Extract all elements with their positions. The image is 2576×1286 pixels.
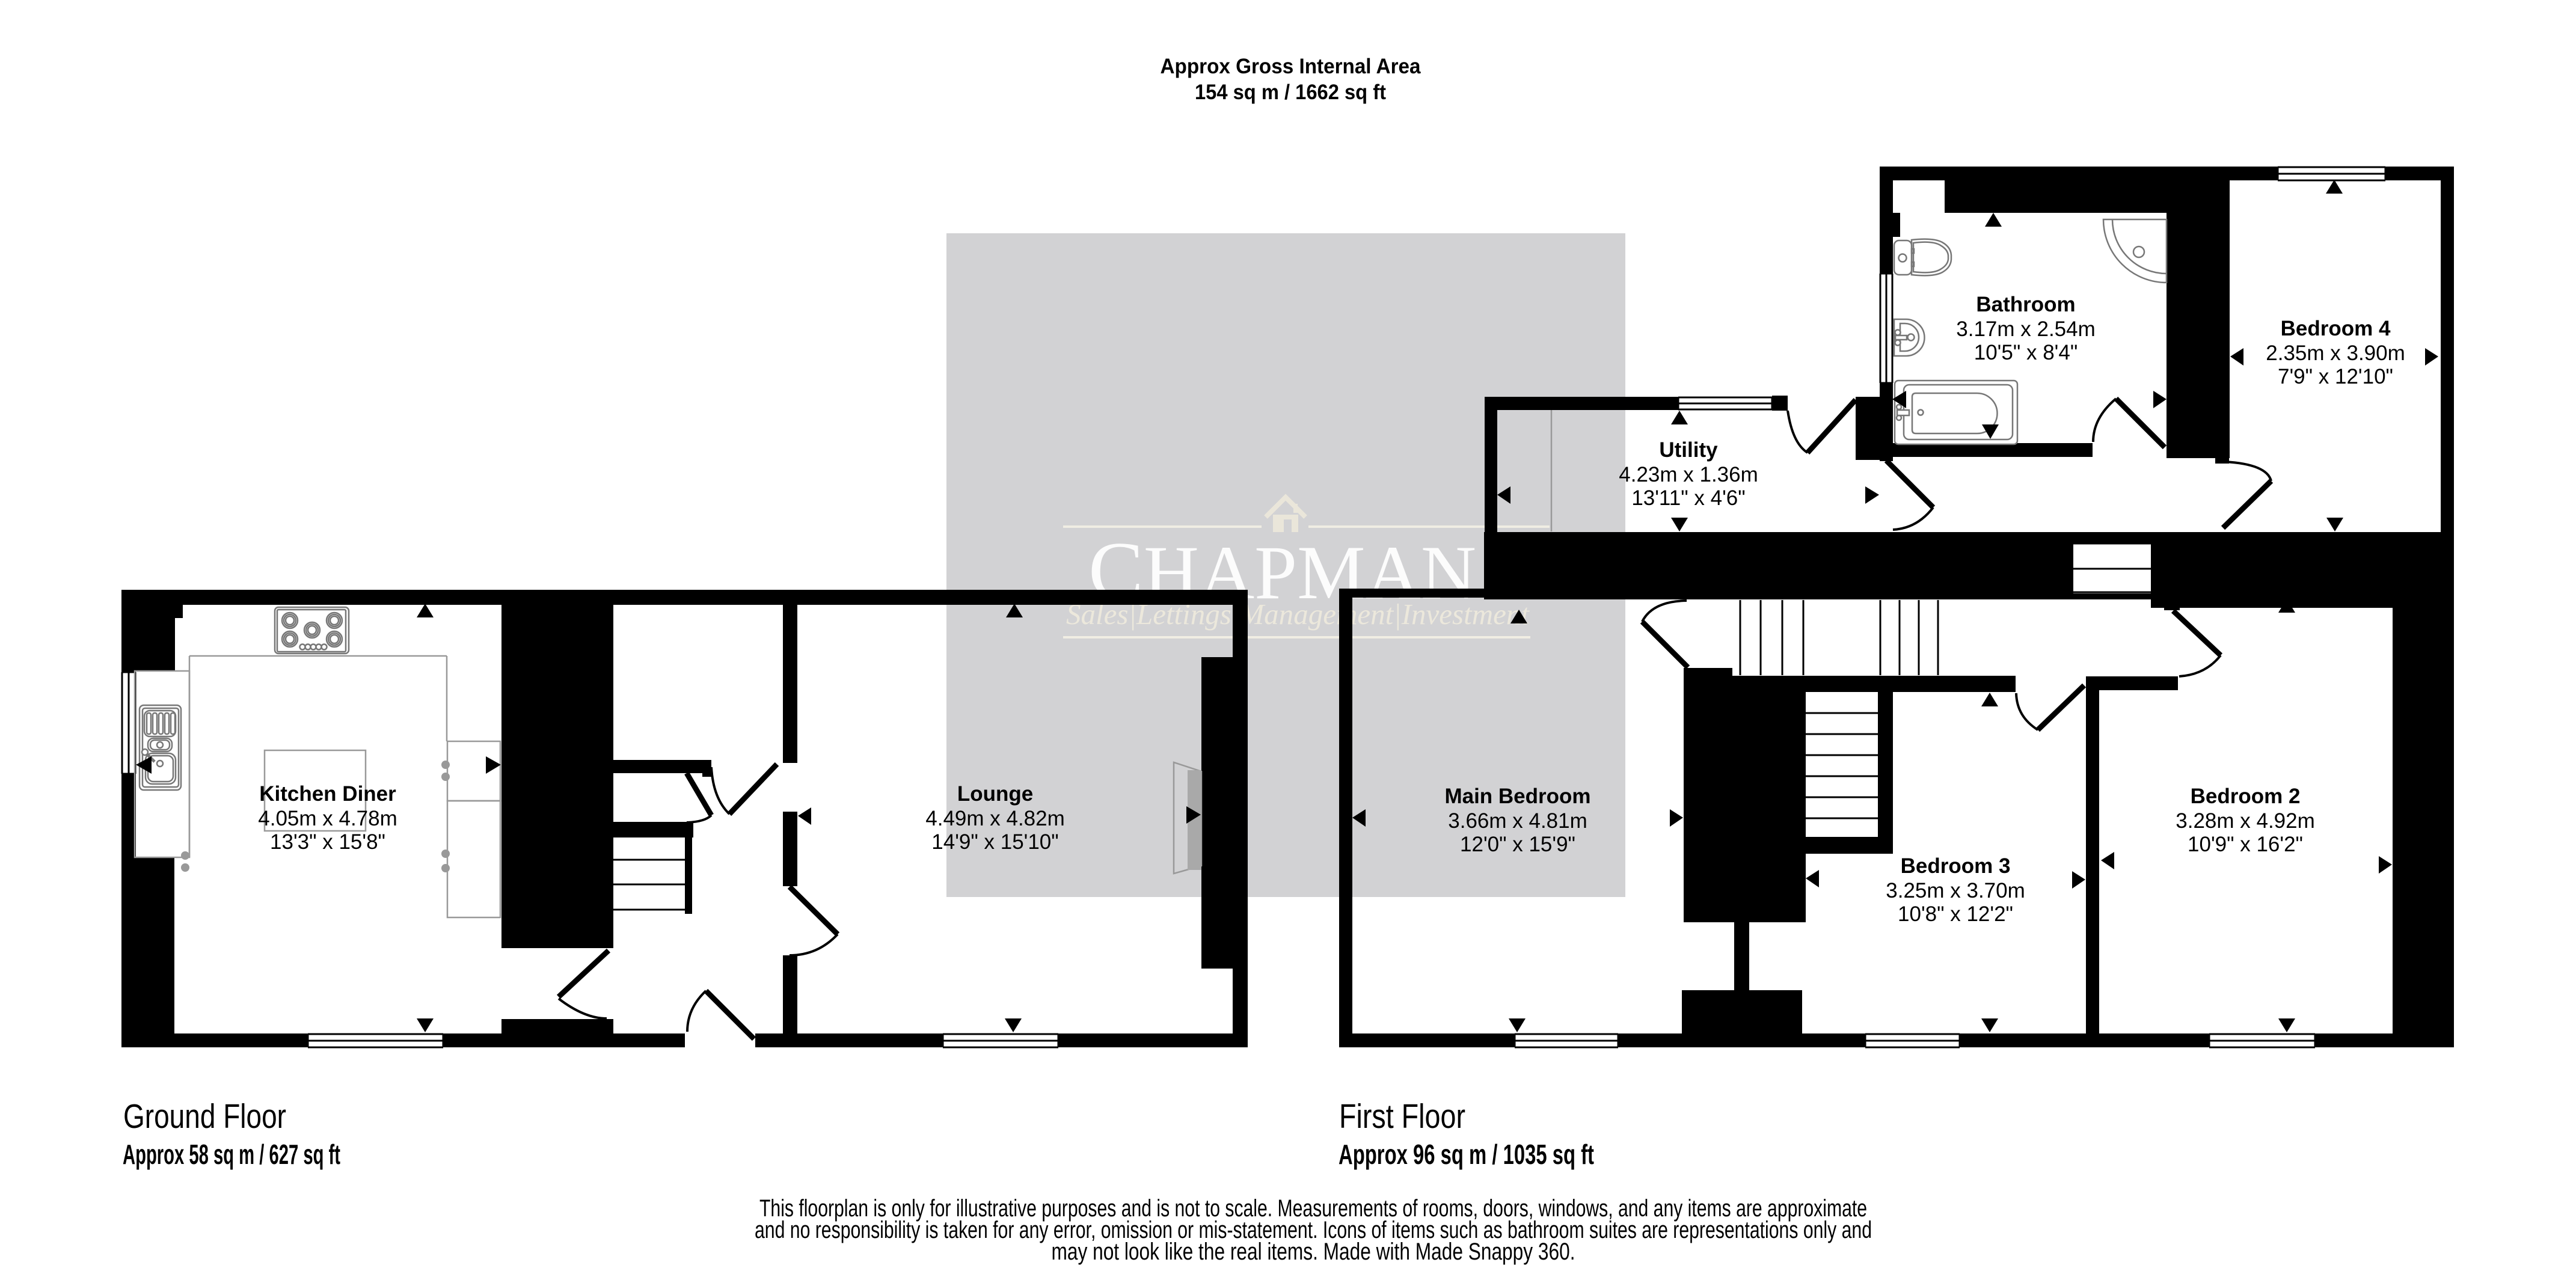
svg-text:Approx Gross Internal Area: Approx Gross Internal Area [1161, 55, 1421, 78]
svg-text:Kitchen Diner: Kitchen Diner [259, 782, 396, 806]
svg-text:Bedroom 4: Bedroom 4 [2281, 317, 2391, 340]
svg-text:13'3" x 15'8": 13'3" x 15'8" [270, 830, 385, 854]
svg-text:may not look like the real ite: may not look like the real items. Made w… [1052, 1239, 1575, 1265]
svg-text:10'9" x 16'2": 10'9" x 16'2" [2188, 833, 2303, 856]
svg-text:154 sq m / 1662 sq ft: 154 sq m / 1662 sq ft [1195, 81, 1386, 104]
svg-text:Approx 96 sq m / 1035 sq ft: Approx 96 sq m / 1035 sq ft [1339, 1139, 1594, 1170]
svg-text:Bathroom: Bathroom [1976, 293, 2075, 316]
svg-text:14'9" x 15'10": 14'9" x 15'10" [931, 830, 1058, 854]
svg-text:Utility: Utility [1659, 438, 1718, 462]
svg-text:3.25m x 3.70m: 3.25m x 3.70m [1886, 879, 2025, 902]
svg-text:Lounge: Lounge [957, 782, 1033, 806]
svg-text:7'9" x 12'10": 7'9" x 12'10" [2278, 365, 2393, 388]
svg-text:Approx 58 sq m / 627 sq ft: Approx 58 sq m / 627 sq ft [123, 1139, 340, 1170]
svg-text:Bedroom 2: Bedroom 2 [2191, 785, 2301, 808]
svg-text:4.05m x 4.78m: 4.05m x 4.78m [258, 807, 397, 830]
svg-text:13'11" x 4'6": 13'11" x 4'6" [1631, 486, 1745, 510]
svg-text:3.66m x 4.81m: 3.66m x 4.81m [1448, 809, 1587, 833]
svg-text:10'8" x 12'2": 10'8" x 12'2" [1898, 902, 2013, 926]
svg-text:4.49m x 4.82m: 4.49m x 4.82m [925, 807, 1065, 830]
svg-text:Main Bedroom: Main Bedroom [1444, 785, 1590, 808]
svg-text:4.23m x 1.36m: 4.23m x 1.36m [1619, 463, 1758, 486]
svg-text:3.17m x 2.54m: 3.17m x 2.54m [1956, 317, 2096, 341]
svg-text:12'0" x 15'9": 12'0" x 15'9" [1460, 833, 1575, 856]
svg-text:Ground Floor: Ground Floor [123, 1097, 286, 1136]
svg-text:Bedroom 3: Bedroom 3 [1901, 854, 2011, 878]
svg-text:10'5" x 8'4": 10'5" x 8'4" [1974, 341, 2078, 364]
svg-text:First Floor: First Floor [1339, 1097, 1465, 1136]
svg-text:3.28m x 4.92m: 3.28m x 4.92m [2176, 809, 2315, 833]
svg-text:2.35m x 3.90m: 2.35m x 3.90m [2266, 341, 2405, 365]
